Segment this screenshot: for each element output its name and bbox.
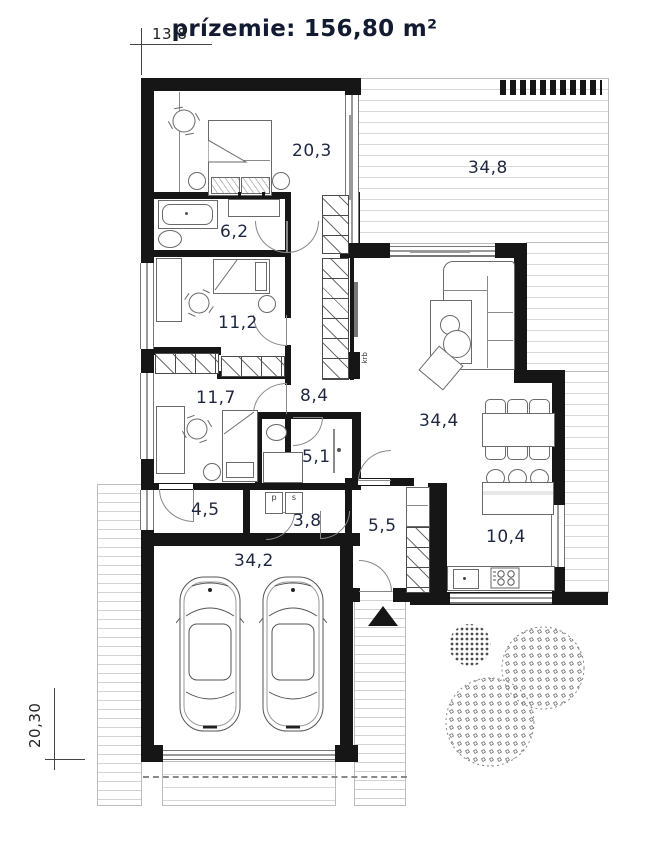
blanket-fold [222, 410, 256, 436]
dryer-label: s [292, 493, 296, 502]
tree-large-icon [446, 678, 534, 766]
wall-north [141, 78, 361, 91]
washbasin [263, 452, 303, 483]
slider-panel [410, 250, 470, 253]
window-storage [140, 490, 154, 530]
wall-interior [285, 250, 291, 318]
room-label-bathroom: 6,2 [220, 222, 249, 242]
sofa-line [443, 290, 488, 291]
sink-drain [463, 577, 466, 580]
closet-bedroom3 [221, 356, 285, 377]
kitchen-sink [453, 569, 479, 589]
pillow [241, 177, 270, 194]
room-label-terrace: 34,8 [468, 158, 508, 178]
wall-interior [428, 483, 447, 593]
wall-garage-south-right [335, 745, 358, 762]
closet-hall [322, 258, 349, 380]
dimension-top: 13,8 [152, 25, 187, 43]
pillow [255, 262, 267, 291]
front-door [359, 560, 392, 592]
sofa-line [488, 340, 513, 341]
shower-head [337, 448, 341, 452]
pillow [226, 462, 254, 478]
tv [354, 282, 358, 337]
door-bedroom2 [253, 315, 287, 346]
washer: p [265, 492, 283, 514]
closet-bedroom2 [155, 353, 219, 374]
room-label-utility: 3,8 [293, 511, 322, 531]
room-label-bedroom2: 11,2 [218, 313, 258, 333]
slider-panel [349, 115, 353, 200]
window-bedroom2 [140, 263, 154, 349]
driveway [163, 762, 335, 805]
room-label-living-room: 34,4 [419, 411, 459, 431]
pillow [211, 177, 240, 194]
nightstand [188, 172, 206, 190]
window-kitchen-south [450, 593, 552, 604]
dimension-top-tick [141, 28, 142, 75]
closet-hall-north [322, 195, 349, 254]
car-icon [259, 574, 327, 734]
fireplace [349, 352, 360, 379]
closet-entry [406, 527, 430, 593]
room-label-kitchen: 10,4 [486, 527, 526, 547]
door-master-bedroom [287, 221, 319, 253]
wall-interior [141, 250, 291, 257]
dimension-left: 20,30 [26, 703, 44, 748]
drain-dot [185, 212, 188, 215]
room-label-entry: 5,5 [368, 516, 397, 536]
toilet [266, 424, 287, 441]
cabinet-divider [406, 505, 428, 506]
dimension-left-tick [45, 759, 85, 760]
room-label-bedroom3: 11,7 [196, 388, 236, 408]
door-storage [159, 489, 194, 522]
door-bedroom3 [253, 383, 287, 414]
dining-table [482, 413, 555, 447]
sink-vanity [228, 199, 280, 217]
wall-garage-south-left [141, 745, 163, 762]
faucet [262, 192, 265, 199]
wall-interior [243, 483, 250, 533]
door-entry-hall [358, 450, 391, 481]
room-label-master-bedroom: 20,3 [292, 141, 332, 161]
wall-interior [345, 483, 352, 535]
wall-garage-east [340, 535, 353, 762]
dimension-top-line [130, 44, 212, 45]
room-label-shower-room: 5,1 [302, 447, 331, 467]
terrace-deck-mid [527, 243, 608, 372]
side-walkway [98, 485, 141, 805]
wall-east-living [514, 243, 527, 376]
floor-plan: prízemie: 156,80 m² 13,8 20,30 [0, 0, 669, 846]
faucet [238, 192, 241, 199]
armchair-icon [160, 97, 208, 145]
wall-interior [285, 345, 291, 385]
room-label-hall: 8,4 [300, 386, 329, 406]
door-shower-room [293, 417, 323, 446]
shower-glass [333, 429, 335, 473]
terrace-deck-side [565, 372, 608, 592]
cabinet-entry [406, 487, 430, 527]
trees [440, 612, 630, 782]
dimension-left-line [54, 688, 55, 770]
blanket-fold [208, 140, 248, 164]
door-bathroom [255, 221, 287, 253]
room-label-garage: 34,2 [234, 551, 274, 571]
blanket-fold [213, 259, 239, 292]
pergola-strip [500, 80, 602, 95]
room-label-storage: 4,5 [191, 500, 220, 520]
stove [490, 567, 520, 589]
stool [258, 295, 276, 313]
property-line [143, 776, 407, 778]
sofa-line [488, 312, 513, 313]
tree-small-icon [449, 624, 491, 666]
car-icon [176, 574, 244, 734]
fireplace-label: krb [361, 352, 369, 363]
page-title: prízemie: 156,80 m² [0, 16, 609, 42]
washer-label: p [271, 493, 276, 502]
wall-entry-south-left [340, 588, 360, 602]
window-bedroom3 [140, 373, 154, 459]
wall-segment [345, 78, 361, 95]
toilet [158, 230, 182, 248]
stool [203, 463, 221, 481]
garage-door [163, 750, 335, 760]
kitchen-island [482, 482, 554, 515]
nightstand [272, 172, 290, 190]
